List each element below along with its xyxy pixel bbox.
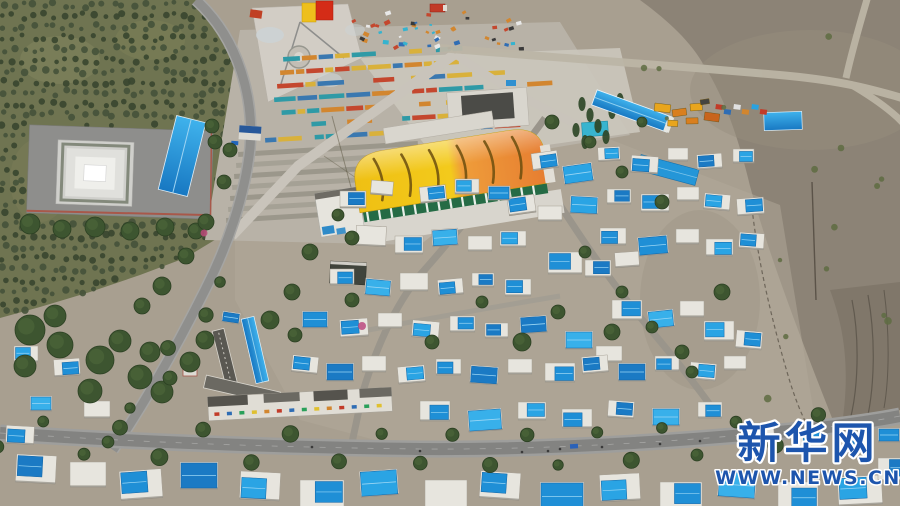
village-house	[505, 279, 531, 296]
orchard-tree	[13, 308, 19, 314]
orchard-tree	[162, 114, 167, 119]
blossom-tree	[358, 322, 366, 330]
village-house	[302, 311, 328, 328]
orchard-tree	[113, 43, 120, 50]
material-pile	[426, 13, 431, 17]
orchard-tree	[19, 60, 24, 65]
shrub	[665, 116, 669, 120]
orchard-tree	[42, 287, 49, 294]
orchard-tree	[20, 246, 26, 252]
orchard-tree	[92, 69, 98, 75]
orchard-tree	[179, 34, 185, 40]
orchard-tree	[110, 56, 116, 62]
orchard-tree	[204, 45, 210, 51]
red-machine	[250, 9, 263, 19]
orchard-tree	[99, 49, 104, 54]
orchard-tree	[11, 143, 17, 149]
village-house	[239, 471, 280, 501]
tree-highlight	[554, 461, 560, 467]
material-strip	[305, 82, 315, 87]
pedestrian	[521, 451, 524, 454]
tree-highlight	[224, 144, 232, 152]
orchard-tree	[13, 200, 18, 205]
orchard-tree	[199, 109, 205, 115]
shop-sign	[289, 408, 294, 412]
village-house	[400, 273, 428, 291]
orchard-tree	[93, 21, 100, 28]
orchard-tree	[140, 66, 145, 71]
material-pile	[519, 47, 524, 51]
orchard-tree	[29, 280, 35, 286]
shop-sign	[264, 410, 269, 414]
orchard-tree	[13, 80, 20, 87]
house-walls	[508, 359, 532, 374]
orchard-tree	[79, 290, 86, 297]
orchard-tree	[4, 69, 9, 74]
village-house	[378, 313, 402, 328]
orchard-tree	[218, 87, 224, 93]
container	[742, 109, 750, 115]
orchard-tree	[3, 278, 9, 284]
orchard-tree	[151, 111, 157, 117]
watermark-logo-text: 新华网	[738, 419, 879, 469]
orchard-tree	[3, 203, 8, 208]
orchard-tree	[140, 45, 145, 50]
orchard-tree	[13, 180, 19, 186]
material-pile	[492, 26, 497, 30]
orchard-tree	[144, 113, 150, 119]
orchard-tree	[179, 110, 185, 116]
orchard-tree	[125, 245, 130, 250]
tree-highlight	[617, 167, 624, 174]
orchard-tree	[113, 223, 120, 230]
shop-sign	[277, 409, 282, 413]
tree-highlight	[190, 225, 199, 234]
orchard-tree	[74, 67, 80, 73]
orchard-tree	[29, 0, 37, 8]
orchard-tree	[59, 101, 66, 108]
orchard-tree	[10, 68, 15, 73]
orchard-tree	[201, 32, 207, 38]
house-shadow	[668, 159, 688, 161]
orchard-tree	[12, 155, 17, 160]
orchard-tree	[191, 243, 197, 249]
orchard-tree	[33, 50, 38, 55]
orchard-tree	[44, 23, 49, 28]
orchard-tree	[13, 103, 19, 109]
village-house	[359, 469, 399, 498]
orchard-tree	[159, 36, 164, 41]
orchard-tree	[0, 37, 4, 42]
orchard-tree	[212, 82, 217, 87]
orchard-tree	[108, 113, 115, 120]
orchard-tree	[111, 275, 118, 282]
tree-highlight	[80, 381, 93, 394]
orchard-tree	[1, 1, 8, 8]
village-house	[119, 469, 163, 501]
orchard-tree	[72, 268, 79, 275]
orchard-tree	[52, 37, 59, 44]
tree-highlight	[245, 456, 254, 465]
orchard-tree	[50, 292, 55, 297]
tree-highlight	[515, 335, 525, 345]
orchard-tree	[182, 103, 187, 108]
orchard-tree	[139, 222, 146, 229]
shrub	[825, 33, 832, 40]
orchard-tree	[13, 232, 19, 238]
orchard-tree	[94, 60, 100, 66]
tree-highlight	[580, 247, 587, 254]
orchard-tree	[172, 25, 179, 32]
orchard-tree	[41, 57, 46, 62]
orchard-tree	[29, 246, 34, 251]
orchard-tree	[72, 56, 78, 62]
orchard-tree	[13, 277, 19, 283]
village-house	[615, 251, 640, 268]
village-house	[355, 225, 386, 247]
orchard-tree	[88, 102, 94, 108]
orchard-tree	[29, 109, 36, 116]
tree-highlight	[552, 306, 560, 314]
shrub	[881, 313, 886, 318]
material-strip	[325, 67, 333, 72]
orchard-tree	[12, 3, 19, 10]
orchard-tree	[182, 56, 189, 63]
orchard-tree	[30, 300, 37, 307]
orchard-tree	[40, 224, 45, 229]
village-house	[548, 252, 582, 274]
orchard-tree	[53, 268, 58, 273]
orchard-tree	[130, 23, 136, 29]
orchard-tree	[70, 277, 75, 282]
orchard-tree	[151, 46, 156, 51]
orchard-tree	[0, 156, 6, 162]
orchard-tree	[0, 13, 5, 18]
orchard-tree	[11, 90, 16, 95]
orchard-tree	[212, 109, 219, 116]
orchard-tree	[131, 3, 138, 10]
orchard-tree	[213, 38, 218, 43]
orchard-tree	[60, 26, 65, 31]
village-house	[637, 235, 669, 257]
orchard-tree	[63, 256, 69, 262]
orchard-tree	[4, 103, 10, 109]
house-shadow	[676, 242, 699, 244]
orchard-tree	[51, 16, 56, 21]
orchard-tree	[69, 236, 74, 241]
orchard-tree	[149, 81, 155, 87]
orchard-tree	[44, 81, 50, 87]
orchard-tree	[50, 99, 57, 106]
orchard-tree	[193, 113, 199, 119]
orchard-tree	[184, 1, 189, 6]
orchard-tree	[122, 25, 129, 32]
orchard-tree	[3, 307, 10, 314]
village-house	[518, 402, 546, 420]
tree-highlight	[289, 329, 297, 337]
tree-highlight	[153, 383, 165, 395]
shop-sign	[239, 411, 244, 415]
orchard-tree	[90, 11, 98, 19]
orchard-tree	[92, 48, 99, 55]
orchard-tree	[114, 241, 120, 247]
tree-highlight	[87, 219, 98, 230]
orchard-tree	[39, 112, 45, 118]
village-house	[585, 260, 611, 277]
orchard-tree	[20, 103, 26, 109]
village-house	[630, 155, 658, 174]
orchard-tree	[21, 235, 26, 240]
house-shadow	[607, 202, 631, 204]
orchard-tree	[129, 38, 135, 44]
orchard-tree	[89, 1, 95, 7]
orchard-tree	[40, 48, 45, 53]
orchard-tree	[109, 123, 114, 128]
shop-sign	[352, 405, 357, 409]
village-house	[570, 195, 599, 215]
house-walls	[84, 401, 110, 418]
orchard-tree	[98, 1, 104, 7]
tree-highlight	[103, 437, 110, 444]
orchard-tree	[2, 49, 7, 54]
orchard-tree	[193, 60, 198, 65]
village-house	[676, 229, 699, 244]
orchard-tree	[74, 289, 79, 294]
village-house	[395, 236, 423, 254]
orchard-tree	[12, 290, 17, 295]
village-house	[733, 149, 754, 163]
tree-highlight	[182, 354, 193, 365]
orchard-tree	[92, 81, 99, 88]
shop-sign	[252, 410, 257, 414]
machine	[686, 118, 698, 124]
orchard-tree	[3, 242, 10, 249]
orchard-tree	[21, 16, 27, 22]
orchard-tree	[40, 246, 45, 251]
tree-highlight	[692, 450, 699, 457]
orchard-tree	[112, 37, 118, 43]
orchard-tree	[142, 16, 147, 21]
material-strip	[335, 53, 350, 58]
orchard-tree	[193, 93, 198, 98]
orchard-tree	[82, 100, 88, 106]
shrub	[831, 224, 838, 231]
orchard-tree	[118, 2, 124, 8]
orchard-tree	[68, 34, 74, 40]
orchard-tree	[79, 36, 86, 43]
tree-highlight	[206, 120, 214, 128]
shop-sign	[377, 404, 382, 408]
orchard-tree	[181, 223, 188, 230]
tree-highlight	[426, 336, 434, 344]
tree-highlight	[284, 427, 293, 436]
orchard-tree	[101, 37, 106, 42]
house-shadow	[400, 289, 428, 291]
orchard-tree	[161, 24, 168, 31]
house-shadow	[362, 370, 386, 372]
orchard-tree	[170, 246, 175, 251]
village-house	[607, 400, 634, 419]
material-strip	[419, 101, 431, 106]
orchard-tree	[78, 235, 85, 242]
orchard-tree	[164, 2, 168, 6]
material-pile	[383, 40, 389, 45]
orchard-tree	[62, 67, 67, 72]
orchard-tree	[180, 45, 185, 50]
shrub	[778, 258, 782, 262]
tree-highlight	[197, 424, 205, 432]
watermark-url-text: WWW.NEWS.CN	[715, 467, 900, 489]
orchard-tree	[102, 90, 109, 97]
tree-highlight	[155, 279, 165, 289]
village-house	[485, 323, 508, 338]
village-house	[531, 150, 559, 171]
orchard-tree	[112, 89, 117, 94]
orchard-tree	[218, 110, 225, 117]
orchard-tree	[221, 104, 226, 109]
orchard-tree	[22, 1, 27, 6]
orchard-tree	[68, 114, 75, 121]
orchard-tree	[73, 254, 79, 260]
tree-highlight	[55, 222, 65, 232]
orchard-tree	[82, 59, 88, 65]
orchard-tree	[74, 104, 79, 109]
house-shadow	[468, 249, 492, 251]
orchard-tree	[219, 80, 226, 87]
poplar-tree	[594, 119, 601, 133]
orchard-tree	[14, 220, 19, 225]
orchard-tree	[19, 199, 25, 205]
village-house	[15, 454, 56, 484]
orchard-tree	[172, 0, 177, 5]
village-house	[562, 409, 592, 428]
house-shadow	[508, 372, 532, 374]
orchard-tree	[12, 123, 19, 130]
village-house	[704, 321, 734, 341]
orchard-tree	[159, 254, 164, 259]
orchard-tree	[93, 110, 100, 117]
aerial-photo-canvas: 新华网 WWW.NEWS.CN	[0, 0, 900, 506]
material-strip	[335, 66, 350, 71]
orchard-tree	[171, 78, 177, 84]
shrub	[884, 317, 892, 325]
tree-highlight	[50, 335, 64, 349]
tree-highlight	[676, 346, 684, 354]
orchard-tree	[163, 67, 170, 74]
orchard-tree	[50, 254, 56, 260]
orchard-tree	[10, 133, 15, 138]
village-house	[472, 273, 494, 287]
orchard-tree	[9, 265, 15, 271]
orchard-tree	[62, 56, 67, 61]
orchard-tree	[170, 33, 176, 39]
tree-highlight	[218, 176, 226, 184]
orchard-tree	[21, 69, 29, 77]
orchard-tree	[34, 81, 40, 87]
pedestrian	[601, 446, 604, 449]
orchard-tree	[170, 54, 176, 60]
orchard-tree	[52, 93, 58, 99]
tree-highlight	[18, 318, 35, 335]
orchard-tree	[143, 264, 148, 269]
orchard-tree	[104, 56, 109, 61]
orchard-tree	[140, 104, 146, 110]
material-pile	[427, 44, 431, 47]
orchard-tree	[123, 110, 130, 117]
orchard-tree	[31, 22, 38, 29]
orchard-tree	[30, 65, 37, 72]
house-shadow	[585, 275, 611, 277]
village-house	[565, 331, 593, 349]
orchard-tree	[23, 90, 28, 95]
village-house	[600, 228, 626, 245]
tree-highlight	[546, 116, 554, 124]
tree-highlight	[114, 422, 122, 430]
village-house	[519, 315, 547, 334]
orchard-tree	[148, 21, 155, 28]
village-house	[735, 330, 762, 350]
village-house	[612, 300, 642, 320]
tree-highlight	[209, 136, 217, 144]
village-house	[479, 471, 521, 501]
aerial-photo: 新华网 WWW.NEWS.CN	[0, 0, 900, 506]
orchard-tree	[100, 253, 105, 258]
orchard-tree	[73, 79, 79, 85]
orchard-tree	[61, 33, 66, 38]
orchard-tree	[172, 11, 177, 16]
village-house	[84, 401, 110, 418]
orchard-tree	[83, 89, 89, 95]
machine	[668, 120, 678, 127]
tree-highlight	[716, 286, 725, 295]
orchard-tree	[150, 256, 156, 262]
orchard-tree	[188, 15, 195, 22]
orchard-tree	[139, 90, 144, 95]
orchard-tree	[179, 70, 186, 77]
orchard-tree	[102, 81, 109, 88]
tree-highlight	[484, 459, 492, 467]
orchard-tree	[72, 13, 78, 19]
orchard-tree	[43, 3, 49, 9]
orchard-tree	[133, 59, 140, 66]
village-house	[468, 236, 492, 251]
red-banner	[316, 1, 333, 20]
orchard-tree	[154, 65, 159, 70]
orchard-tree	[119, 266, 126, 273]
material-strip	[296, 69, 305, 74]
orchard-tree	[11, 245, 19, 253]
orchard-tree	[109, 80, 115, 86]
orchard-tree	[129, 67, 134, 72]
village-house	[467, 408, 502, 433]
shop-sign	[339, 406, 344, 410]
poplar-tree	[578, 97, 585, 111]
orchard-tree	[132, 12, 139, 19]
orchard-tree	[11, 45, 18, 52]
orchard-tree	[41, 298, 46, 303]
orchard-tree	[24, 299, 29, 304]
orchard-tree	[34, 254, 39, 259]
orchard-tree	[91, 287, 96, 292]
orchard-tree	[118, 10, 125, 17]
orchard-tree	[199, 99, 205, 105]
village-house	[668, 148, 688, 161]
tree-highlight	[593, 428, 599, 434]
orchard-tree	[179, 24, 185, 30]
village-house	[425, 480, 467, 506]
house-walls	[538, 206, 562, 221]
tree-highlight	[638, 118, 644, 124]
